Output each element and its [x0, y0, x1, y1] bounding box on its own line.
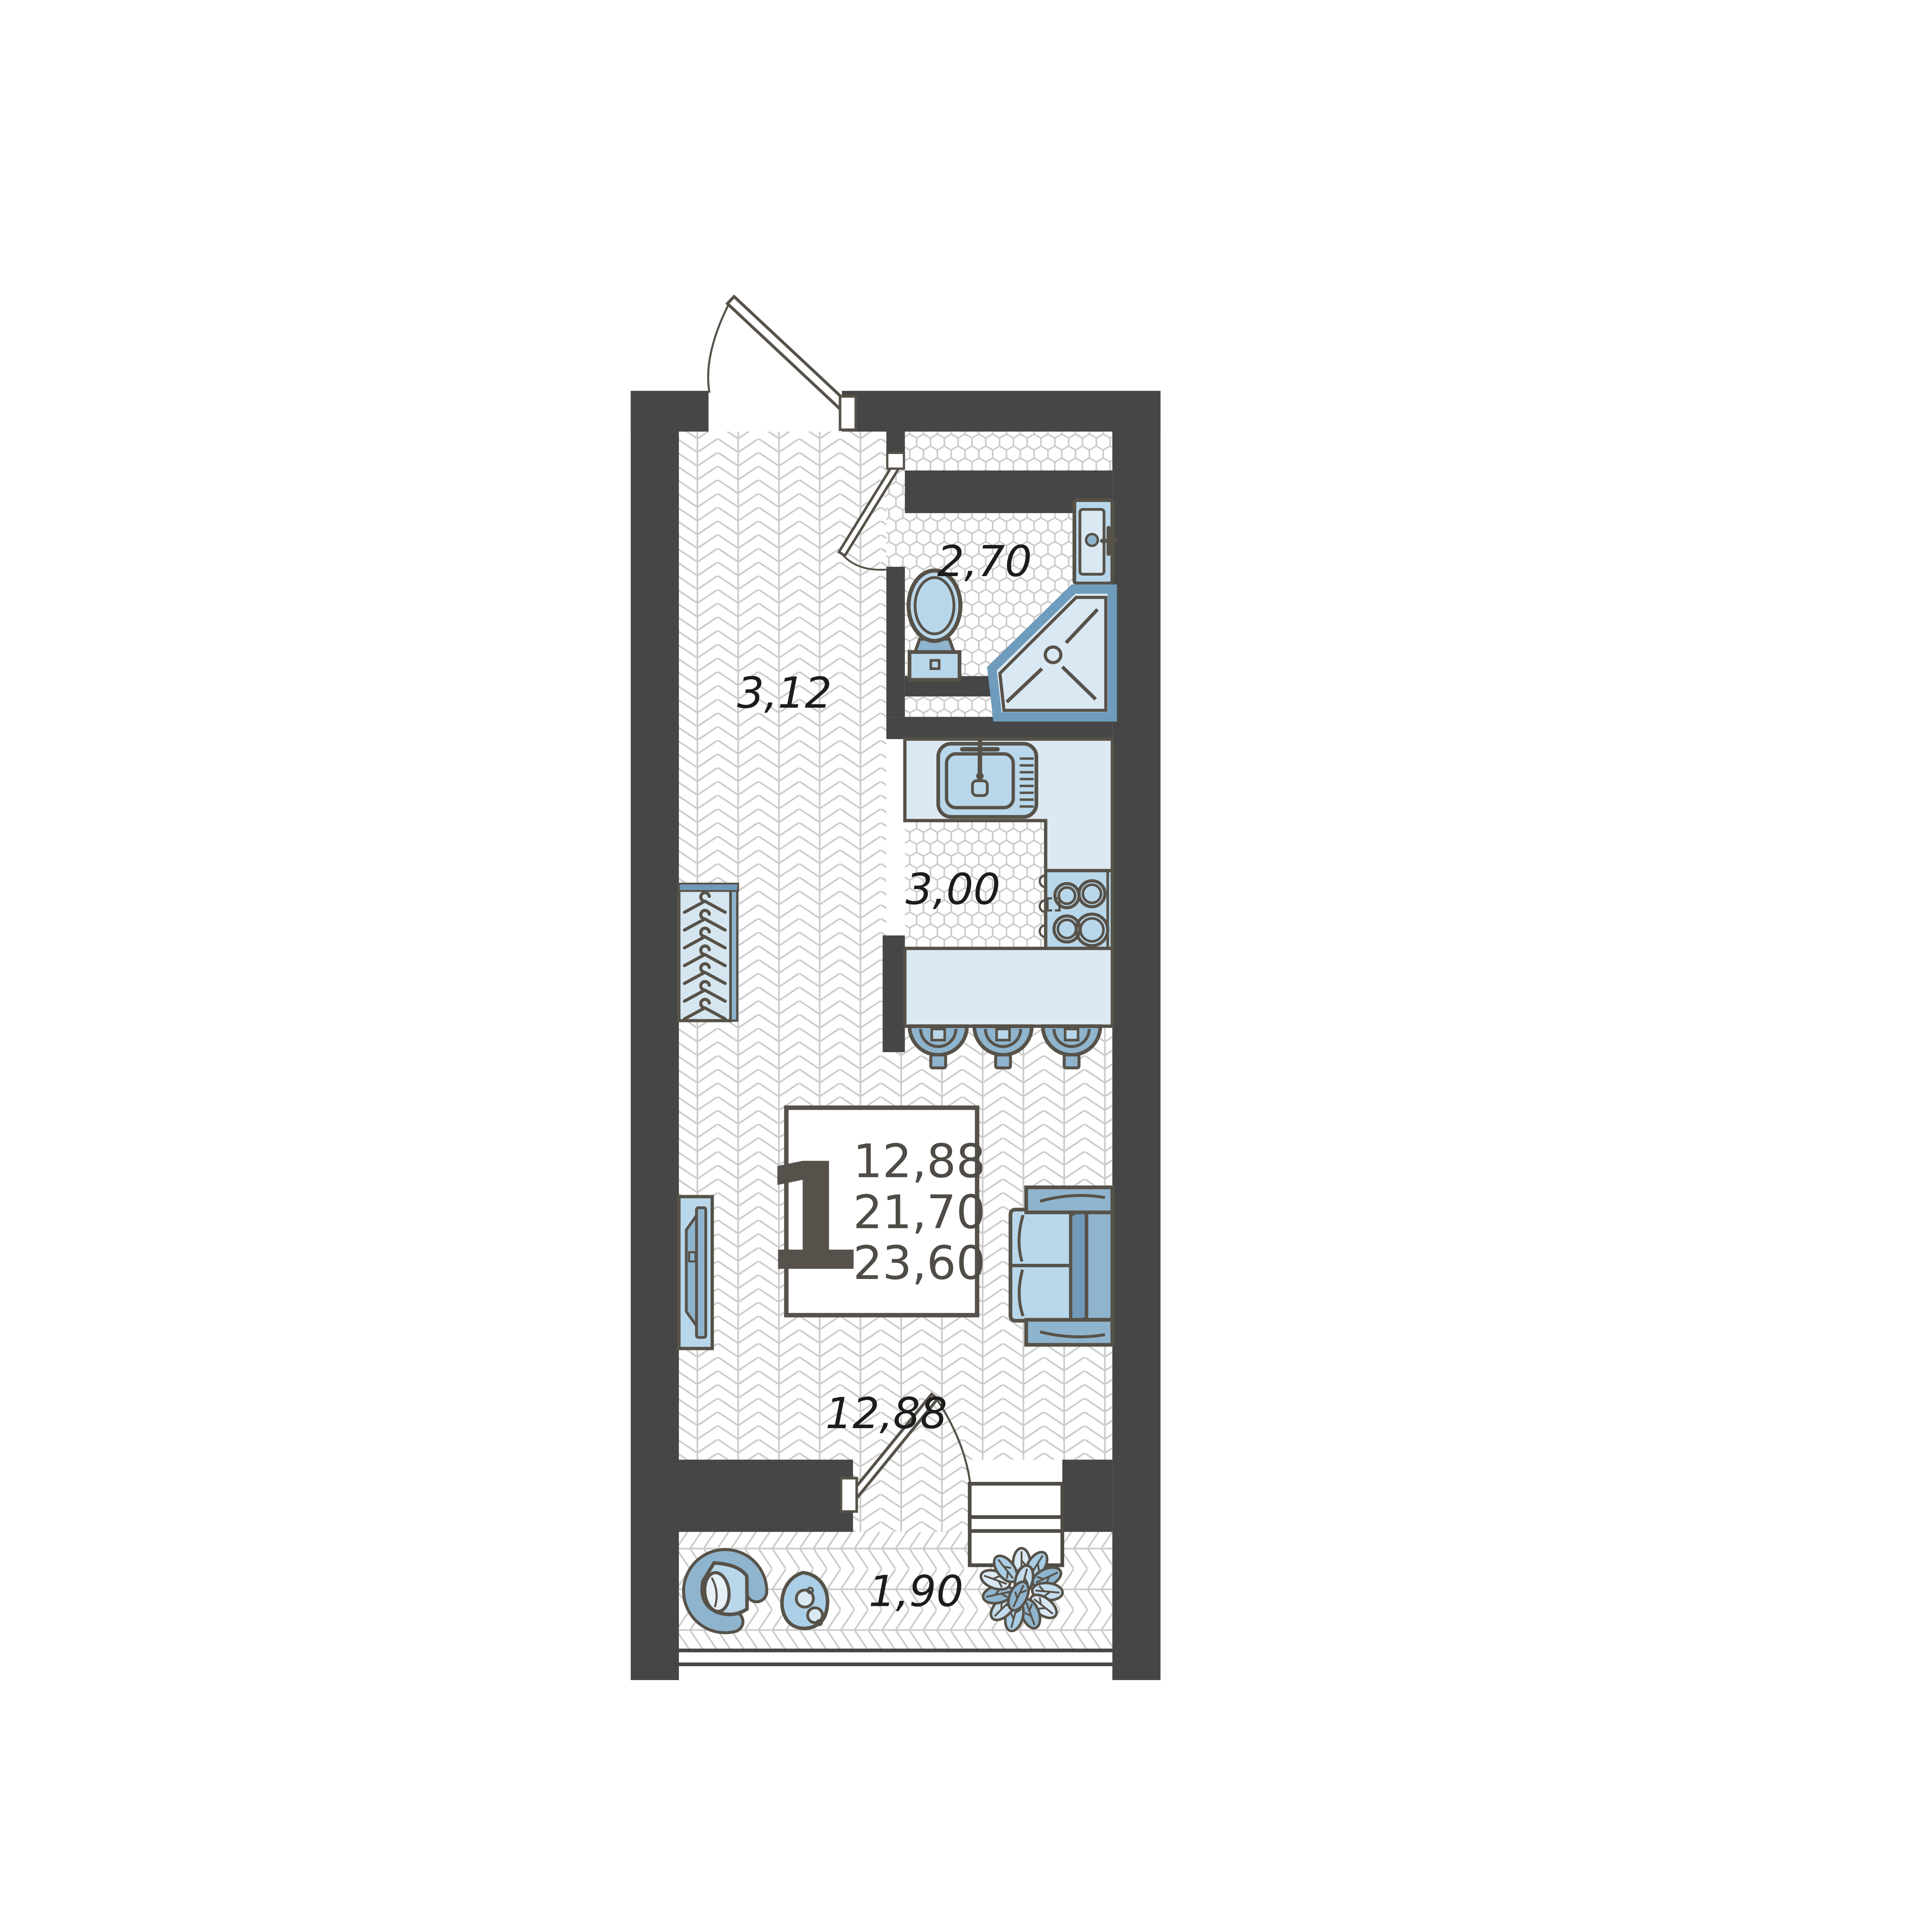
bathroom-sink — [1074, 500, 1115, 583]
wardrobe-hangers — [679, 884, 738, 1021]
floor-plan-page: 3,12 2,70 3,00 12,88 1,90 1 12,88 21,70 … — [0, 0, 1932, 1932]
floor-plan: 3,12 2,70 3,00 12,88 1,90 1 12,88 21,70 … — [0, 0, 1932, 1932]
balcony-glazing-line-1 — [679, 1649, 1112, 1653]
sofa-back — [1087, 1213, 1112, 1320]
bathroom-area-label: 2,70 — [937, 537, 1032, 587]
balcony-glazing-line-2 — [679, 1662, 1112, 1666]
info-box: 1 12,88 21,70 23,60 — [761, 1108, 986, 1315]
bar-counter — [905, 948, 1112, 1026]
wall-balcony-left — [679, 1460, 853, 1532]
sofa — [1010, 1187, 1112, 1345]
toilet — [908, 571, 960, 680]
hallway-area-label: 3,12 — [737, 668, 832, 718]
apartment-area-value: 21,70 — [853, 1185, 986, 1239]
living-room-area-label: 12,88 — [825, 1389, 947, 1439]
kitchen-sink — [938, 740, 1036, 817]
wall-balcony-right — [1062, 1460, 1112, 1532]
balcony-door-hinge — [841, 1478, 857, 1512]
sofa-armrest-top — [1026, 1187, 1112, 1213]
side-table — [782, 1573, 828, 1628]
duct-niche-floor — [905, 432, 1112, 471]
wall-bath-divider — [886, 567, 905, 717]
kitchen-area-label: 3,00 — [906, 865, 1000, 914]
bar-stools — [910, 1026, 1100, 1068]
entrance-door-hinge — [840, 396, 856, 430]
sofa-back-cushion — [1071, 1207, 1087, 1326]
living-area-value: 12,88 — [853, 1135, 986, 1189]
total-area-value: 23,60 — [853, 1236, 986, 1290]
wall-left — [631, 391, 679, 1680]
wall-top-left — [631, 391, 708, 432]
sofa-armrest-bottom — [1026, 1320, 1112, 1345]
tv-screen — [696, 1208, 706, 1338]
stove — [1040, 871, 1112, 950]
wall-right — [1112, 391, 1161, 1680]
balcony-area-label: 1,90 — [869, 1567, 963, 1616]
bathroom-door-hinge — [887, 453, 904, 469]
wall-kitchen-stub — [883, 935, 905, 1052]
sink-drain-icon — [973, 781, 987, 796]
tv-console — [679, 1197, 712, 1349]
rooms-count: 1 — [761, 1132, 864, 1304]
